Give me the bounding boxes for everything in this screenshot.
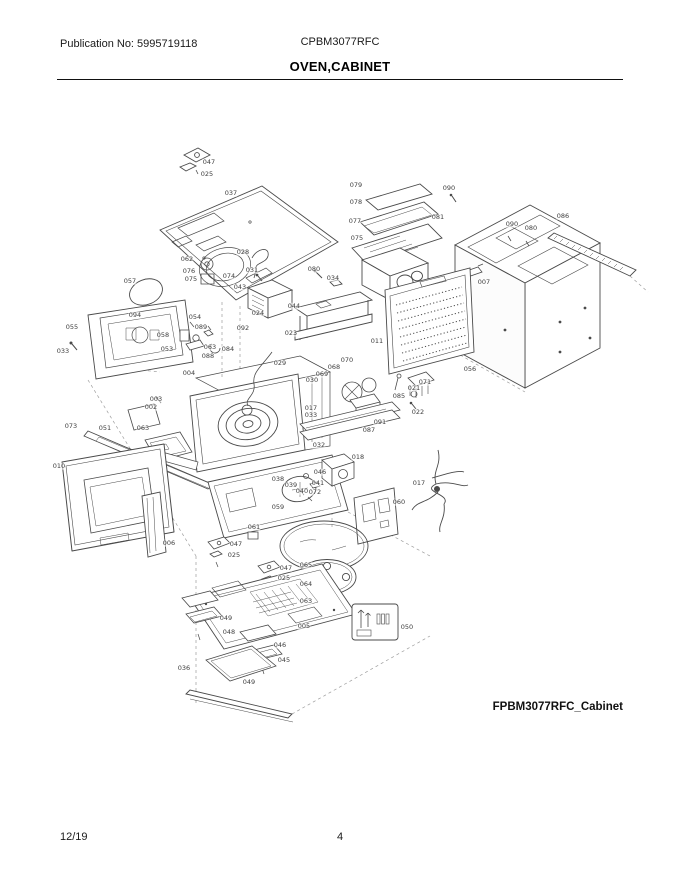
magnetron-art	[408, 372, 434, 409]
cabinet-wrapper-art	[450, 194, 600, 388]
small-plate-art	[128, 397, 161, 430]
footer-page-number: 4	[0, 831, 680, 843]
vent-bracket-art	[180, 148, 210, 174]
hardware-kit-art	[352, 604, 398, 640]
chassis-bracket-art	[295, 270, 372, 340]
oven-cavity-art	[190, 356, 330, 472]
base-plate-art	[190, 564, 356, 649]
long-trim-art	[186, 690, 293, 722]
top-panel-art	[160, 186, 338, 300]
diagram-caption: FPBM3077RFC_Cabinet	[493, 701, 623, 713]
wiring-harness-art	[412, 450, 468, 532]
left-panel-art	[70, 274, 194, 379]
manual-page: Publication No: 5995719118 CPBM3077RFC O…	[0, 0, 680, 880]
side-panel-art	[354, 488, 398, 544]
base-channel-art	[300, 402, 400, 440]
exploded-diagram	[0, 0, 680, 880]
